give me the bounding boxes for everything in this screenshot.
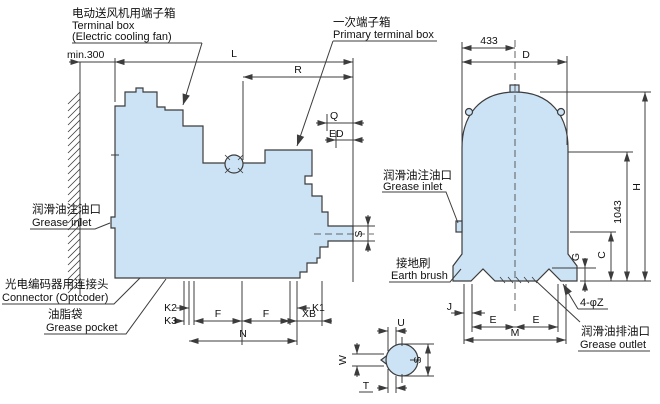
grease-inlet-left-label-cn: 润滑油注油口	[32, 202, 101, 216]
dim-D: D	[522, 49, 530, 61]
earth-brush-label-en: Earth brush	[391, 270, 448, 282]
grease-inlet-right-label-cn: 润滑油注油口	[383, 168, 452, 182]
dim-S-detail: S	[412, 356, 424, 363]
shoulder-bump-left	[466, 109, 473, 116]
grease-fitting	[456, 221, 462, 232]
dim-C: C	[596, 251, 608, 259]
wall-hatching	[68, 62, 80, 295]
dim-1043: 1043	[612, 200, 624, 224]
dim-G: G	[570, 253, 582, 261]
grease-inlet-left-label-en: Grease inlet	[32, 217, 91, 229]
dim-M: M	[511, 327, 520, 339]
dim-ED: ED	[329, 128, 344, 140]
foot-holes-label: 4-φZ	[580, 297, 604, 309]
dim-W: W	[337, 355, 349, 365]
grease-pocket-label-cn: 油脂袋	[48, 307, 83, 321]
grease-pocket-label-en: Grease pocket	[46, 322, 118, 334]
grease-inlet-right-label-en: Grease inlet	[383, 181, 442, 193]
grease-outlet-label-en: Grease outlet	[580, 339, 646, 351]
dim-T: T	[363, 380, 370, 392]
dim-wall-clearance: min.300	[67, 49, 105, 61]
dim-R: R	[294, 64, 302, 76]
grease-outlet-label-cn: 润滑油排油口	[581, 324, 650, 338]
dim-K2: K2	[164, 302, 177, 314]
fan-terminal-box-label-en2: (Electric cooling fan)	[72, 31, 172, 43]
dim-F-left: F	[215, 308, 221, 320]
dim-K3: K3	[164, 315, 177, 327]
fan-terminal-box-label-cn: 电动送风机用端子箱	[72, 6, 176, 20]
primary-terminal-box-label-en: Primary terminal box	[333, 29, 434, 41]
earth-brush-label-cn: 接地刷	[396, 257, 431, 270]
dim-XB: XB	[302, 308, 316, 320]
connector-optcoder-label-en: Connector (Optcoder)	[2, 292, 108, 304]
primary-terminal-box-label-cn: 一次端子箱	[333, 15, 391, 29]
dim-433: 433	[480, 35, 498, 47]
dim-N: N	[239, 328, 247, 340]
dim-S-shaft: S	[353, 230, 365, 237]
dim-J: J	[447, 301, 452, 313]
dim-H: H	[631, 183, 643, 191]
dim-L: L	[231, 48, 237, 60]
connector-optcoder-label-cn: 光电编码器用连接头	[5, 277, 109, 291]
dim-E-right: E	[532, 314, 539, 326]
motor-side-body	[111, 88, 353, 278]
drawing-canvas: 电动送风机用端子箱 Terminal box (Electric cooling…	[0, 0, 660, 404]
dim-U: U	[397, 317, 405, 329]
shoulder-bump-right	[558, 109, 565, 116]
dim-E-left: E	[489, 314, 496, 326]
motor-end-view	[453, 40, 577, 313]
dim-F-right: F	[263, 308, 269, 320]
dim-Q: Q	[330, 110, 338, 122]
motor-outline-drawing: 电动送风机用端子箱 Terminal box (Electric cooling…	[0, 0, 660, 404]
